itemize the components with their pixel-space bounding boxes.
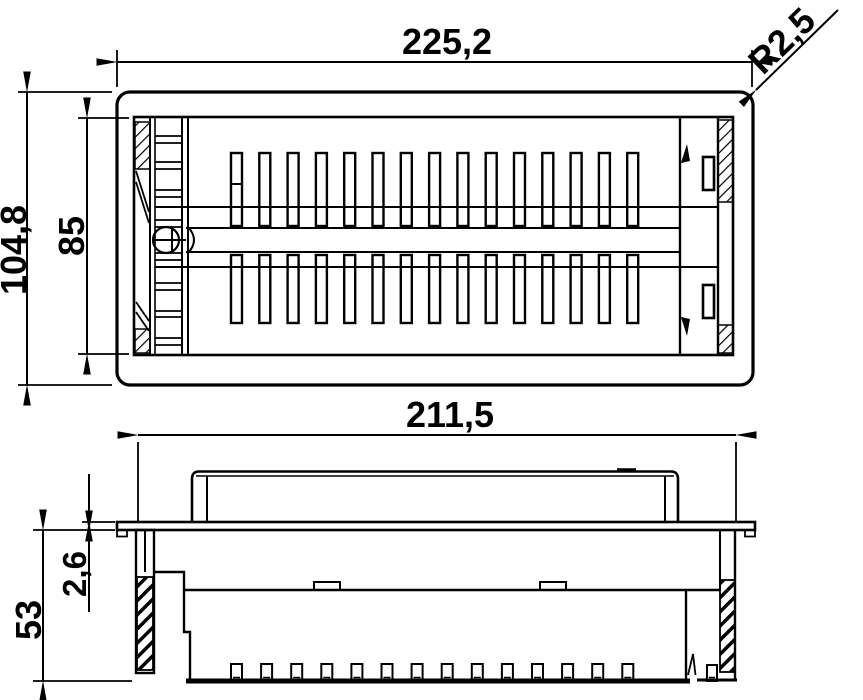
latch-arrow-down-icon: [681, 317, 690, 336]
dim-top-width-label: 225,2: [402, 21, 492, 62]
latch-arrow-up-icon: [681, 144, 690, 163]
right-slot-top: [703, 157, 714, 190]
dim-top-width: 225,2: [117, 21, 752, 87]
dim-body-width-label: 211,5: [406, 394, 494, 435]
rear-housing: [192, 470, 678, 522]
dim-mounting-depth-label: 53: [8, 600, 49, 640]
front-view: [117, 92, 753, 385]
dim-outer-height-label: 104,8: [0, 205, 34, 295]
front-flange: [117, 522, 755, 537]
dim-body-width: 211,5: [138, 394, 736, 521]
latch-hook: [688, 654, 696, 675]
bezel-outline: [117, 92, 753, 385]
drawing-canvas: 225,2 R2,5 104,8 85: [0, 0, 863, 700]
bottom-vent-slots: [231, 255, 638, 323]
dim-flange-thickness: 2,6: [33, 474, 115, 612]
right-slot-bottom: [703, 285, 714, 318]
face-rails: [155, 207, 718, 267]
dim-corner-radius: R2,5: [740, 0, 838, 90]
body-section: [184, 582, 737, 681]
dim-cutout-height-label: 85: [51, 216, 92, 256]
connector-teeth: [231, 664, 633, 681]
latch-ladder: [152, 117, 194, 355]
left-spring-strip: [135, 117, 150, 355]
top-vent-slots: [231, 153, 638, 226]
side-view: [117, 470, 755, 681]
technical-drawing: 225,2 R2,5 104,8 85: [0, 0, 863, 700]
right-retainer: [720, 530, 735, 680]
right-panel: [680, 117, 733, 355]
dim-flange-thickness-label: 2,6: [56, 551, 93, 597]
left-retainer: [136, 530, 190, 681]
